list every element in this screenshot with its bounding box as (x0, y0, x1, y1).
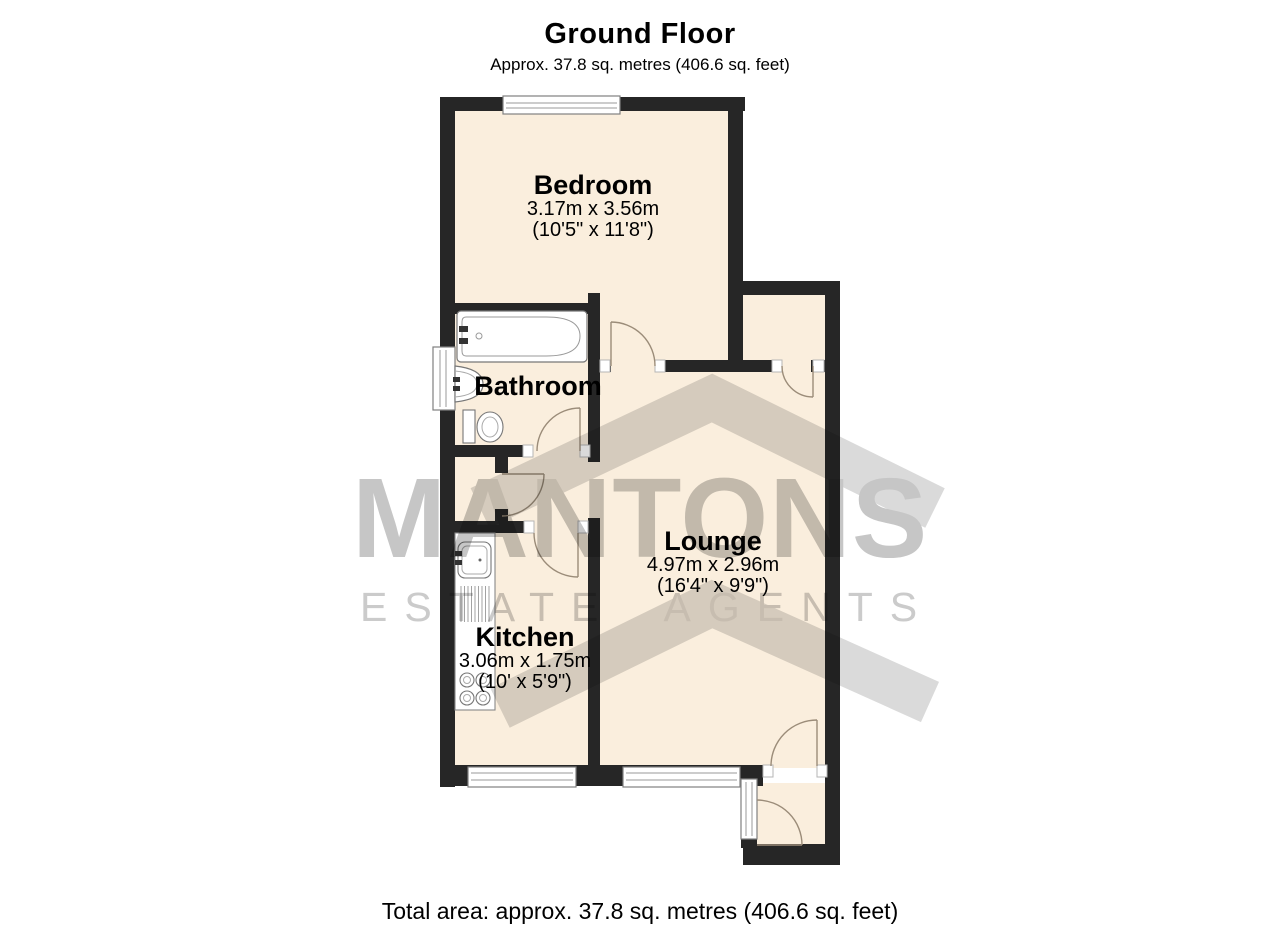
room-label-kitchen: Kitchen 3.06m x 1.75m (10' x 5'9") (459, 623, 591, 693)
sink-drain (479, 559, 482, 562)
window-bedroom (503, 96, 620, 114)
wall-bathroom-bottom-a (440, 445, 533, 457)
wall-bedroom-right (728, 97, 743, 295)
room-name: Kitchen (459, 623, 591, 651)
room-label-bathroom: Bathroom (474, 372, 602, 400)
window-kitchen (468, 767, 576, 787)
wall-cupboard-stub-top (495, 457, 508, 473)
room-dims-metric: 3.06m x 1.75m (459, 651, 591, 672)
room-label-bedroom: Bedroom 3.17m x 3.56m (10'5" x 11'8") (527, 171, 659, 241)
window-vestibule (741, 779, 757, 839)
room-dims-metric: 3.17m x 3.56m (527, 199, 659, 220)
room-dims-imperial: (10'5" x 11'8") (527, 220, 659, 241)
bath-tap-icon (459, 326, 468, 332)
room-name: Lounge (647, 527, 779, 555)
wall-rightsection-top (728, 281, 840, 295)
window-lounge (623, 767, 740, 787)
room-name: Bathroom (474, 372, 602, 400)
room-name: Bedroom (527, 171, 659, 199)
room-dims-imperial: (16'4" x 9'9") (647, 576, 779, 597)
total-area-text: Total area: approx. 37.8 sq. metres (406… (0, 898, 1280, 925)
basin-tap-icon (453, 386, 460, 391)
floorplan-drawing (0, 0, 1280, 931)
window-bathroom (433, 347, 455, 410)
toilet-cistern (463, 410, 475, 443)
wall-vestibule-bottom (743, 844, 840, 865)
wall-kitchen-top-a (440, 521, 534, 533)
sink-tap-icon (455, 560, 462, 565)
floorplan-page: Ground Floor Approx. 37.8 sq. metres (40… (0, 0, 1280, 931)
room-dims-imperial: (10' x 5'9") (459, 672, 591, 693)
sink-tap-icon (455, 551, 462, 556)
room-label-lounge: Lounge 4.97m x 2.96m (16'4" x 9'9") (647, 527, 779, 597)
room-dims-metric: 4.97m x 2.96m (647, 555, 779, 576)
bath-tap-icon (459, 338, 468, 344)
basin-tap-icon (453, 377, 460, 382)
wall-alcove-left (728, 293, 743, 372)
wall-left (440, 97, 455, 787)
wall-divider-b (655, 360, 774, 372)
